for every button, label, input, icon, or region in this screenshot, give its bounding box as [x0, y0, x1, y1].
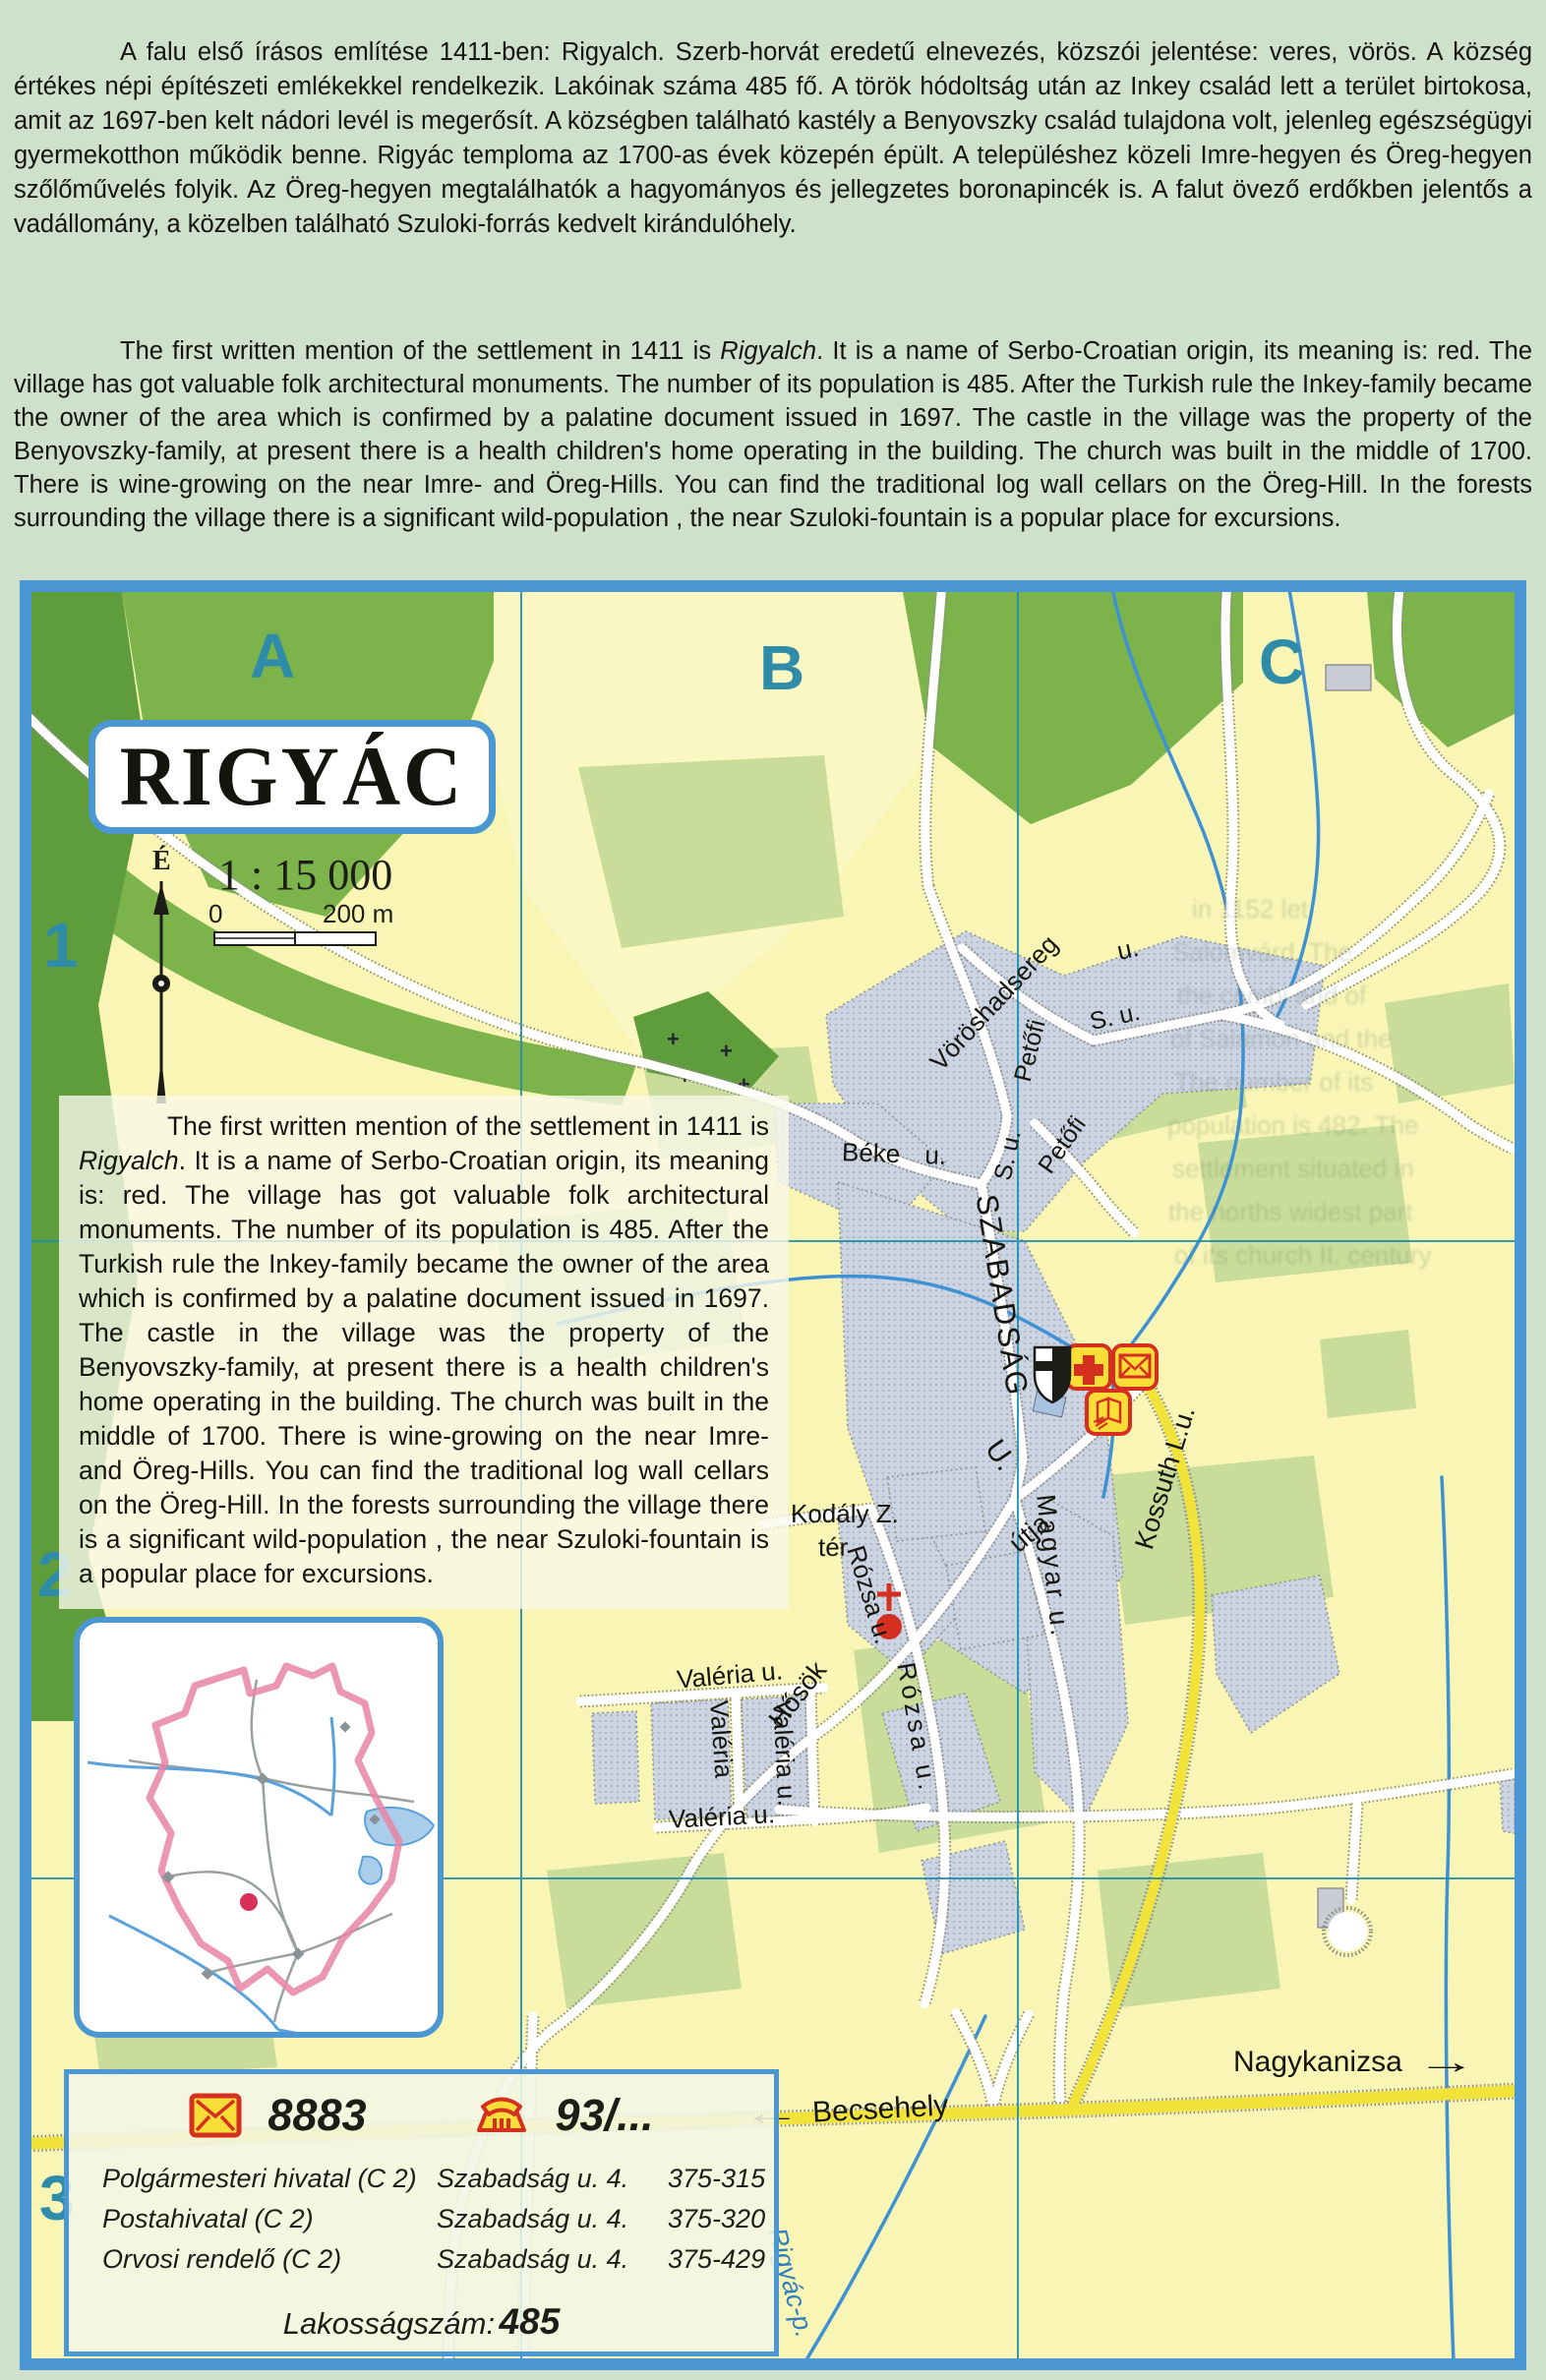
building: [1326, 665, 1371, 690]
phone-icon: [473, 2093, 530, 2138]
street-label-valeria-vertical1: Valéria: [703, 1699, 739, 1779]
institution-phone: 375-429: [668, 2239, 774, 2280]
institution-address: Szabadság u. 4.: [437, 2239, 668, 2280]
svg-text:0: 0: [208, 899, 222, 928]
institution-address: Szabadság u. 4.: [437, 2199, 668, 2239]
intro-en-post: . It is a name of Serbo-Croatian origin,…: [14, 337, 1532, 532]
svg-text:+: +: [720, 1039, 733, 1063]
institution-name: Polgármesteri hivatal (C 2): [102, 2159, 437, 2199]
post-office-icon: [1113, 1345, 1157, 1389]
postal-code: 8883: [268, 2090, 366, 2141]
intro-en-pre: The first written mention of the settlem…: [120, 337, 720, 365]
map-description-pre: The first written mention of the settlem…: [167, 1111, 769, 1141]
info-box-header: 8883 93/...: [69, 2090, 774, 2141]
street-label-kodaly-line1: Kodály Z.: [791, 1499, 899, 1529]
institution-phone: 375-320: [668, 2199, 774, 2239]
info-box-rows: Polgármesteri hivatal (C 2) Szabadság u.…: [69, 2159, 774, 2280]
institution-name: Postahivatal (C 2): [102, 2199, 437, 2239]
map-title-box: RIGYÁC: [89, 720, 496, 834]
svg-text:É: É: [152, 846, 171, 876]
intro-en-name-italic: Rigyalch: [720, 337, 816, 365]
population-line: Lakosságszám: 485: [69, 2301, 774, 2343]
street-label-beke: Béke u.: [841, 1137, 946, 1171]
svg-text:+: +: [667, 1027, 680, 1051]
info-row: Orvosi rendelő (C 2) Szabadság u. 4. 375…: [69, 2239, 774, 2280]
inset-overview-map[interactable]: [74, 1617, 444, 2038]
info-box: 8883 93/... Polgármesteri hivatal (C 2) …: [64, 2069, 779, 2356]
grid-column-c: C: [1259, 625, 1304, 698]
institution-address: Szabadság u. 4.: [437, 2159, 668, 2199]
population-value: 485: [500, 2301, 561, 2342]
town-map[interactable]: ++ ++: [20, 580, 1526, 2370]
street-label-valeria-bottom: Valéria u.: [668, 1799, 775, 1835]
map-content: ++ ++: [31, 592, 1515, 2358]
intro-hu-text: A falu első írásos említése 1411-ben: Ri…: [14, 38, 1532, 238]
inset-lake-small: [359, 1857, 382, 1884]
info-row: Postahivatal (C 2) Szabadság u. 4. 375-3…: [69, 2199, 774, 2239]
library-icon: [1087, 1391, 1130, 1434]
institution-phone: 375-315: [668, 2159, 774, 2199]
intro-paragraph-hungarian: A falu első írásos említése 1411-ben: Ri…: [14, 35, 1532, 242]
grid-column-a: A: [250, 620, 295, 692]
inset-town-markers: [162, 1721, 381, 1980]
inset-village-dot: [240, 1893, 258, 1911]
info-row: Polgármesteri hivatal (C 2) Szabadság u.…: [69, 2159, 774, 2199]
map-description-name-italic: Rigyalch: [79, 1146, 179, 1175]
institution-name: Orvosi rendelő (C 2): [102, 2239, 437, 2280]
map-description-box: The first written mention of the settlem…: [59, 1096, 789, 1609]
inset-map-graphic: [80, 1623, 438, 2032]
arrow-east-icon: →: [1416, 2044, 1476, 2082]
population-label: Lakosságszám:: [283, 2306, 495, 2341]
intro-paragraph-english: The first written mention of the settlem…: [14, 334, 1532, 535]
direction-label-nagykanizsa: Nagykanizsa: [1233, 2046, 1402, 2079]
inset-boundary: [149, 1666, 399, 1993]
health-icon: [1067, 1345, 1110, 1389]
map-scale-ratio: 1 : 15 000: [218, 850, 392, 900]
grid-column-b: B: [759, 631, 804, 704]
svg-text:200 m: 200 m: [323, 899, 393, 928]
road-turnaround-fill: [1328, 1912, 1367, 1951]
phone-prefix: 93/...: [556, 2090, 654, 2141]
direction-label-becsehely: Becsehely: [811, 2089, 949, 2129]
map-title: RIGYÁC: [120, 729, 465, 825]
church-shield-icon: [1035, 1347, 1070, 1402]
postal-code-icon: [189, 2093, 242, 2138]
map-description-post: . It is a name of Serbo-Croatian origin,…: [79, 1146, 769, 1588]
grid-row-1: 1: [43, 909, 79, 982]
